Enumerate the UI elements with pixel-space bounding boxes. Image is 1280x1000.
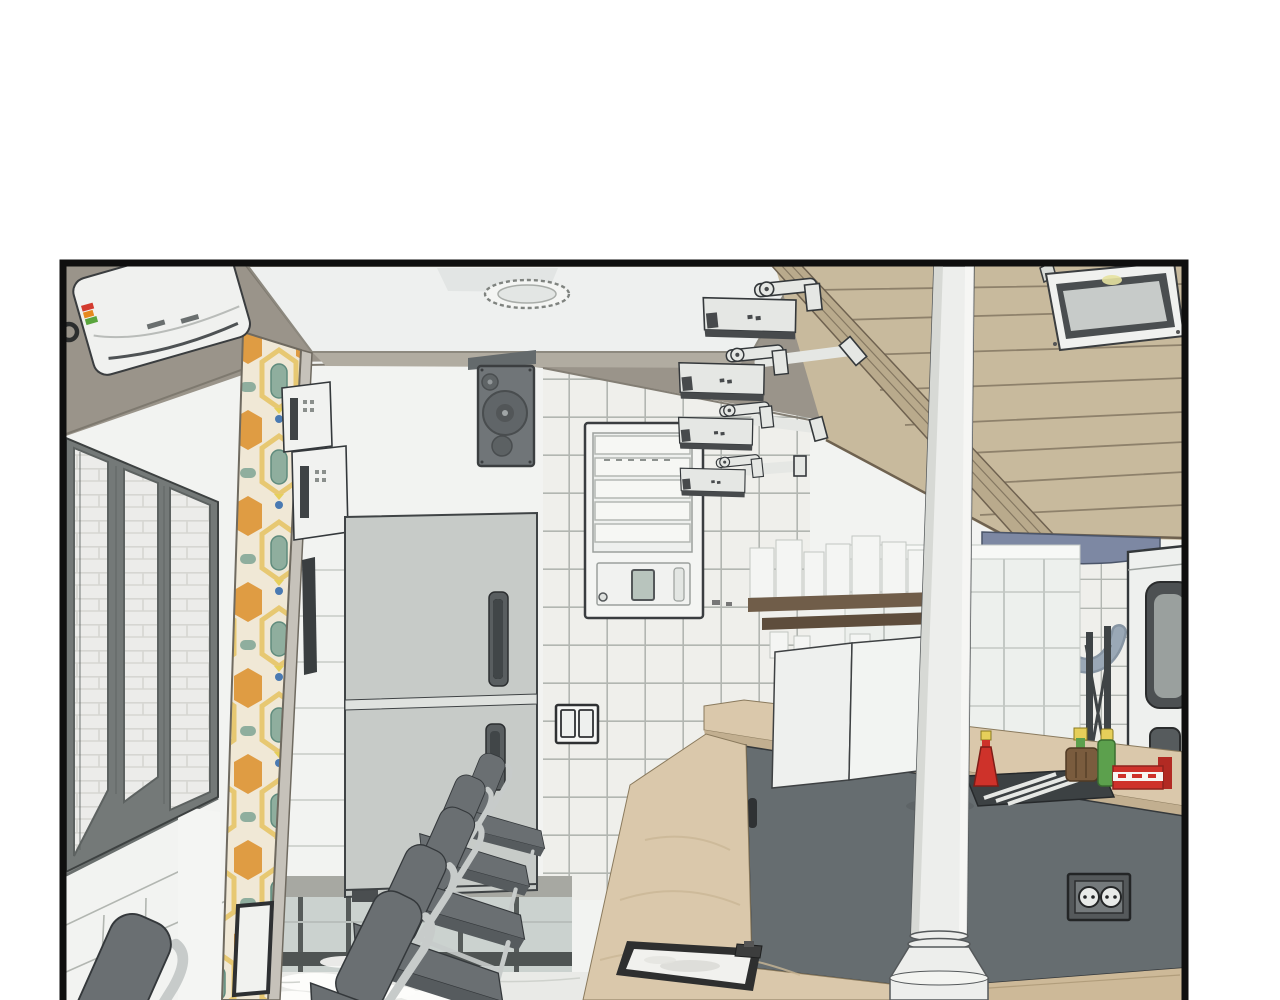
recessed-ceiling-light: [485, 280, 569, 308]
vent-control-panel: [597, 563, 690, 605]
render-viewport: [0, 0, 1280, 1000]
light-switches: [556, 705, 598, 743]
chopstick-box: [1066, 748, 1098, 781]
louvered-vent: [585, 423, 703, 618]
counter-handle-2: [748, 798, 757, 828]
door-edge-slot: [302, 557, 317, 675]
interior-window: [66, 438, 218, 872]
access-panel: [234, 903, 272, 995]
power-outlet: [1068, 874, 1130, 920]
ceiling-speaker: [468, 350, 536, 466]
scene-render: [0, 0, 1280, 1000]
partition-screens: [772, 637, 925, 788]
led-floodlight: [1040, 262, 1184, 350]
